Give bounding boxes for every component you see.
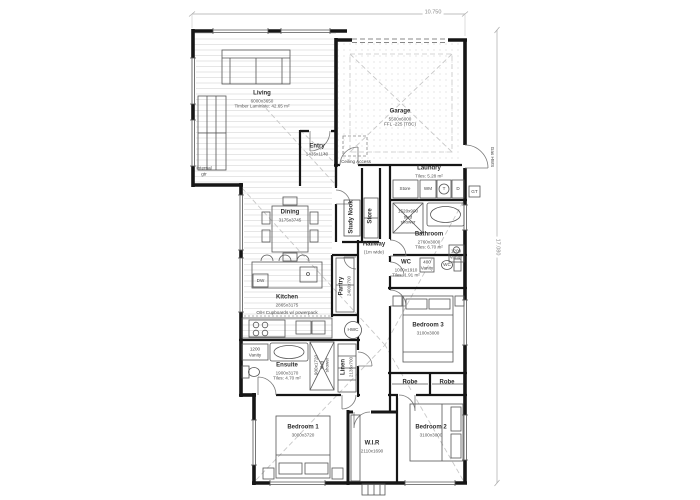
wc-label: WC1000x1910Tiles: 1.91 m² <box>392 260 420 279</box>
dining-label: Dining3175x3745 <box>279 209 302 222</box>
living-label: Living6000x3650Timber Laminate: 42.65 m² <box>235 91 290 110</box>
store-cupboard-label: Store <box>400 186 411 192</box>
ensuite-shower-label: 900x1720tiledshower <box>313 355 330 375</box>
bathroom-vanity-label: 1200Vanity <box>450 248 462 259</box>
ensuite-label: Ensuite1900x3170Tiles: 4.70 m² <box>273 363 301 382</box>
floor-plan-drawing <box>0 0 700 500</box>
right-dimension: 17.080 <box>494 237 501 258</box>
gas-hws-label: Gas HWS <box>489 147 495 167</box>
ohc-note-label: O/H Cupboards w/ powerpack <box>256 310 317 316</box>
top-dimension: 10.750 <box>423 10 444 17</box>
laundry-label: LaundryTiles: 5.28 m² <box>415 165 443 178</box>
hwc-label: HWC <box>348 327 359 333</box>
tub-label: T <box>443 186 446 192</box>
study-nook-label: Study Nook <box>348 200 356 233</box>
bathroom-label: Bathroom2760x3000Tiles: 6.70 m² <box>415 232 443 251</box>
dishwasher-label: DW <box>257 278 265 284</box>
gt-label: GT <box>471 189 477 195</box>
robe-right-label: Robe <box>440 379 455 387</box>
hallway-label: Hallway(1m wide) <box>363 241 385 254</box>
dryer-label: D <box>456 186 459 192</box>
wir-label: W.I.R2110x1690 <box>361 440 383 453</box>
store-nook-label: Store <box>367 208 375 223</box>
ensuite-vanity-label: 1200Vanity <box>249 346 261 357</box>
bedroom2-label: Bedroom 23100x3000 <box>415 424 446 437</box>
kitchen-label: Kitchen2865x3175 <box>276 294 299 307</box>
bedroom1-label: Bedroom 13000x3720 <box>287 424 318 437</box>
wc-vanity-label: 400Vanity <box>421 259 433 270</box>
floor-plan: 10.750 17.080 Living6000x3650Timber Lami… <box>0 0 700 500</box>
linen-label: Linen2135x700 <box>340 357 353 377</box>
bathroom-shower-label: 1520x900tiledshower <box>398 208 418 225</box>
washing-machine-label: WM <box>424 186 432 192</box>
entry-label: Entry1435x1140 <box>306 143 328 156</box>
internal-gutter-note: Internalgtr <box>196 165 211 176</box>
robe-left-label: Robe <box>403 379 418 387</box>
garage-door <box>352 39 448 43</box>
bedroom3-label: Bedroom 33100x3000 <box>412 322 443 335</box>
wc-pan-label: WC <box>443 262 451 268</box>
pantry-label: Pantry2400x700 <box>338 276 351 296</box>
garage-label: Garage5500x6000FFL -225 (TBC) <box>384 109 416 128</box>
ceiling-access-label: Ceiling Access <box>341 159 371 165</box>
